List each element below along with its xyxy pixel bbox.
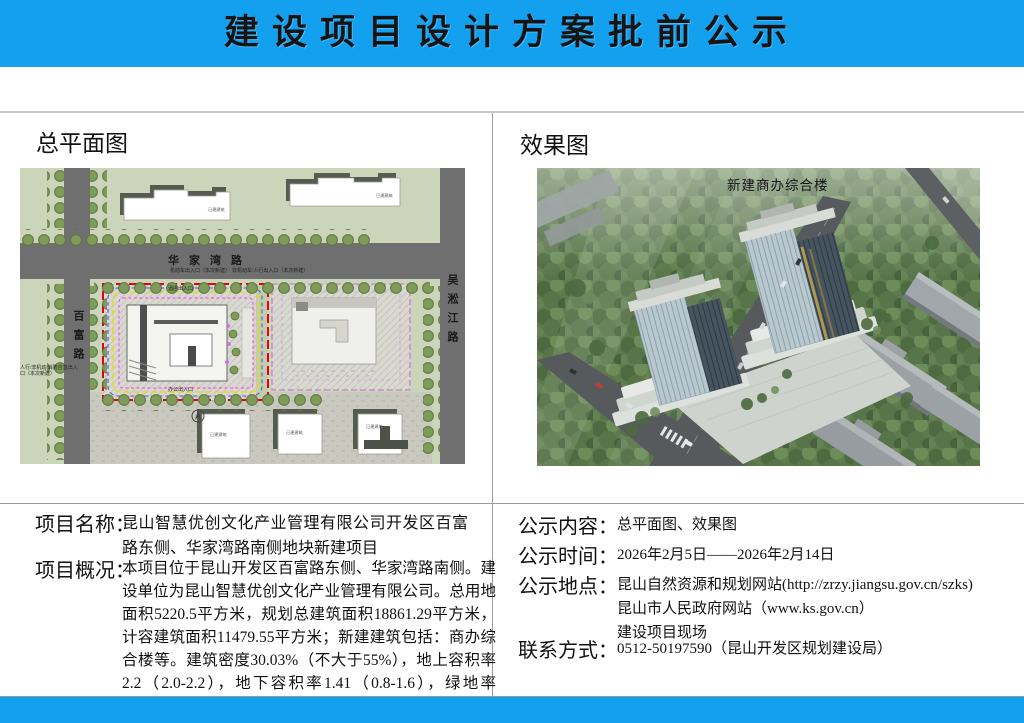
existing-building-label: 已建建筑 <box>210 431 228 438</box>
existing-building-label: 已建建筑 <box>208 206 226 213</box>
existing-building-label: 已建建筑 <box>286 429 304 436</box>
existing-building-south-1: 已建建筑 <box>197 409 250 458</box>
existing-building-label: 已建建筑 <box>366 423 384 430</box>
header-banner: 建设项目设计方案批前公示 <box>0 0 1024 67</box>
notice-content-label: 公示内容： <box>518 510 618 539</box>
notice-place-label: 公示地点： <box>518 570 618 599</box>
rendering-image: 新建商办综合楼 <box>537 168 980 466</box>
entrance-label-west: 人行/非机动/消防应急出入口（本次新建） <box>20 366 78 378</box>
entrance-label-motor: 机动车出入口（本次新建） <box>170 267 230 274</box>
notice-time-label: 公示时间： <box>518 540 618 569</box>
page-title: 建设项目设计方案批前公示 <box>0 0 1024 66</box>
notice-time-value: 2026年2月5日——2026年2月14日 <box>617 543 835 567</box>
road-label-huajiawan: 华家湾路 <box>168 252 252 268</box>
middle-rule <box>0 503 1024 504</box>
rendering-caption: 新建商办综合楼 <box>727 174 829 194</box>
notice-contact-value: 0512-50197590（昆山开发区规划建设局） <box>617 637 892 661</box>
rendering-graphic <box>537 168 980 466</box>
notice-place-line1: 昆山自然资源和规划网站(http://zrzy.jiangsu.gov.cn/s… <box>617 573 973 597</box>
road-label-wusongjiang: 吴淞江路 <box>444 274 460 350</box>
notice-place-value: 昆山自然资源和规划网站(http://zrzy.jiangsu.gov.cn/s… <box>617 573 973 645</box>
notice-page: 建设项目设计方案批前公示 总平面图 效果图 <box>0 0 1024 723</box>
entrance-label-hotel: 酒店出入口 <box>168 285 193 292</box>
project-name-value: 昆山智慧优创文化产业管理有限公司开发区百富路东侧、华家湾路南侧地块新建项目 <box>122 511 468 561</box>
notice-content-value: 总平面图、效果图 <box>617 513 737 537</box>
notice-contact-label: 联系方式： <box>518 634 618 663</box>
site-plan-image: 已建建筑 已建建筑 已建建筑 已建建筑 <box>20 168 465 464</box>
top-rule <box>0 111 1024 113</box>
siteplan-section-title: 总平面图 <box>36 124 128 158</box>
site-plan-graphic: 已建建筑 已建建筑 已建建筑 已建建筑 <box>20 168 465 464</box>
existing-building-south-2: 已建建筑 <box>273 409 322 454</box>
road-label-baifu: 百富路 <box>70 310 86 367</box>
entrance-label-office: 办公出入口 <box>168 386 193 393</box>
existing-building-south-3: 已建建筑 <box>353 409 408 454</box>
rendering-section-title: 效果图 <box>520 126 589 160</box>
project-overview-label: 项目概况： <box>35 554 135 583</box>
existing-building-label: 已建建筑 <box>376 192 394 199</box>
project-name-label: 项目名称： <box>35 508 135 537</box>
entrance-label-nonmotor: 非机动车/人行出入口（本次新建） <box>232 267 308 274</box>
footer-bar <box>0 696 1024 723</box>
project-overview-value: 本项目位于昆山开发区百富路东侧、华家湾路南侧。建设单位为昆山智慧优创文化产业管理… <box>122 557 496 718</box>
notice-place-line2: 昆山市人民政府网站（www.ks.gov.cn） <box>617 597 973 621</box>
